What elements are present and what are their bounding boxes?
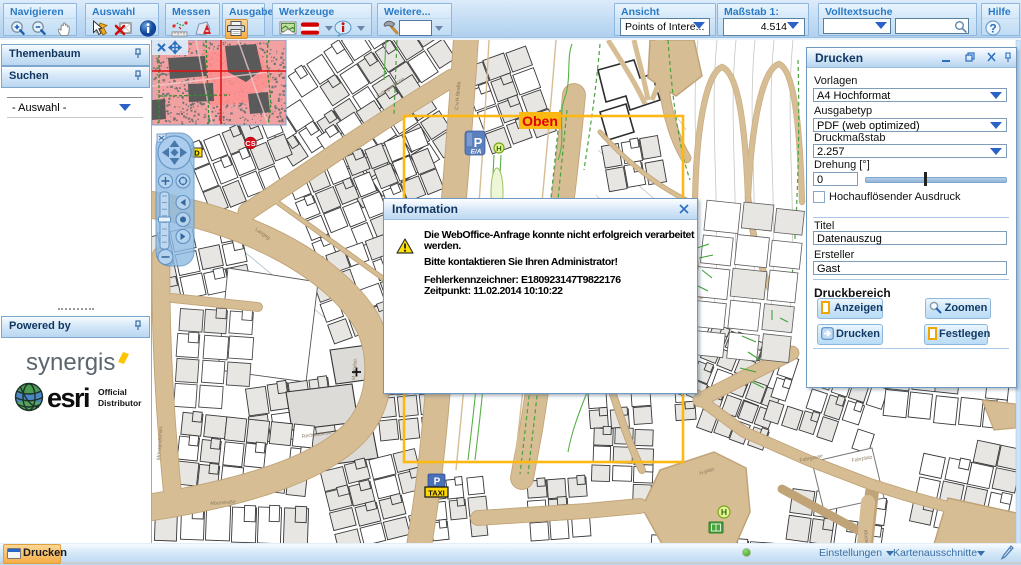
svg-text:H: H [496,144,501,153]
svg-text:Official: Official [98,387,127,397]
svg-text:Distributor: Distributor [98,398,142,408]
svg-text:P: P [434,477,441,488]
svg-text:synergis: synergis [26,350,115,376]
svg-text:TAXI: TAXI [428,488,445,497]
svg-text:?: ? [989,22,996,36]
svg-text:H: H [721,507,727,517]
svg-text:Oben: Oben [522,113,558,129]
svg-text:esri: esri [47,383,89,413]
svg-text:D: D [194,149,200,158]
svg-text:E/A: E/A [471,149,482,156]
svg-text:CS: CS [245,139,255,148]
